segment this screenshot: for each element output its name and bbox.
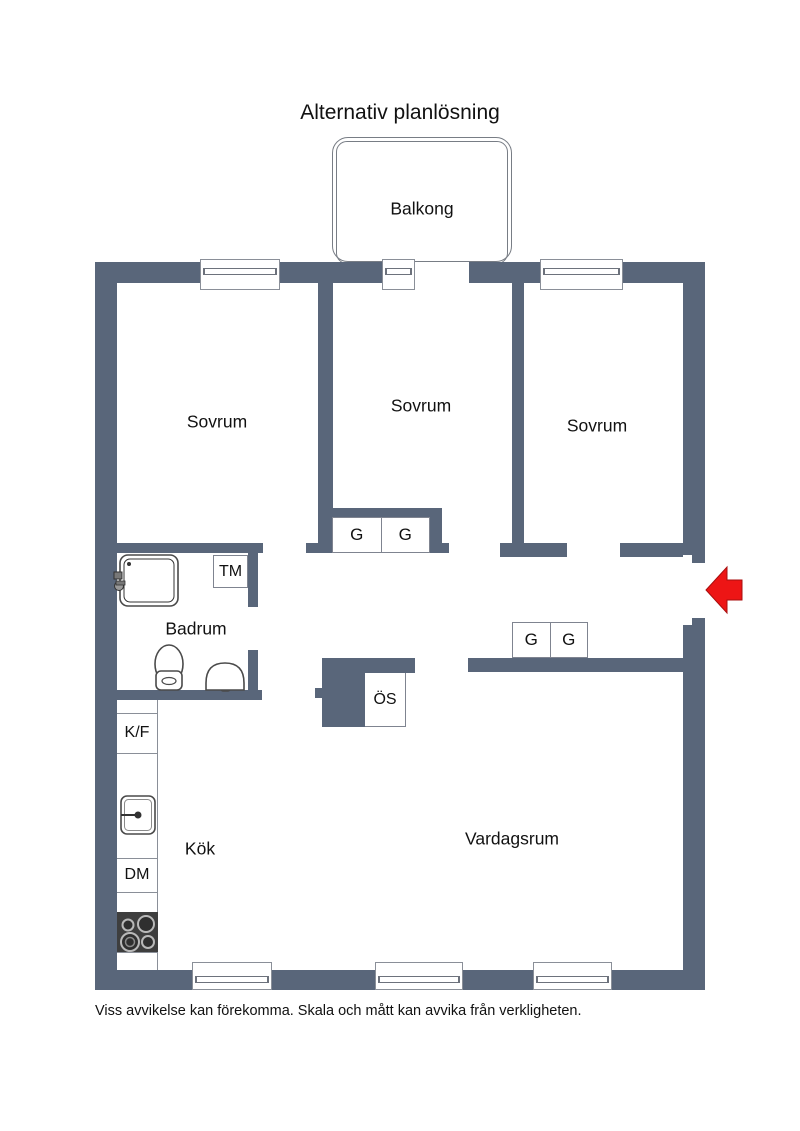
closet-cell: G [381, 518, 430, 552]
entrance-door-opening [683, 563, 705, 618]
closet-label: G [562, 630, 575, 650]
room-label-bedroom-left: Sovrum [187, 412, 247, 433]
window-pane [203, 268, 277, 275]
closet-cell: G [333, 518, 381, 552]
room-label-bedroom-middle: Sovrum [391, 396, 451, 417]
counter-divider [117, 713, 157, 714]
dishwasher-label: DM [125, 866, 150, 884]
toilet-icon [150, 640, 190, 695]
wall-tiled-stove-top [322, 658, 415, 673]
closet-label: G [525, 630, 538, 650]
wall-bedroom-middle-bottom [318, 508, 442, 517]
closet-cell: G [513, 623, 550, 657]
room-label-kitchen: Kök [185, 839, 215, 860]
window-bedroom-right [540, 259, 623, 290]
wall-foot-kitchen-door [315, 688, 322, 698]
closet-label: G [350, 525, 363, 545]
room-label-living-room: Vardagsrum [465, 829, 559, 850]
closet-label: G [399, 525, 412, 545]
window-bedroom-left [200, 259, 280, 290]
entrance-jamb-notch-bottom [683, 618, 692, 625]
wall-closet-right [430, 517, 442, 553]
closet-bedroom-middle: G G [332, 517, 430, 553]
closet-cell: G [550, 623, 588, 657]
tiled-stove-label: ÖS [373, 691, 396, 709]
window-pane [378, 976, 460, 983]
window-pane [536, 976, 609, 983]
wall-bathroom-top [117, 543, 263, 553]
bathroom-sink-icon [200, 658, 250, 694]
window-pane [543, 268, 620, 275]
floor-plan: Alternativ planlösning Balkong G G G G [0, 0, 800, 1131]
window-kitchen [192, 962, 272, 990]
wall-hall-top-right-of-bedroom3-door [620, 543, 683, 557]
room-label-bathroom: Badrum [165, 619, 226, 640]
wall-exterior-left [95, 262, 117, 990]
disclaimer-text: Viss avvikelse kan förekomma. Skala och … [95, 1003, 582, 1019]
entrance-arrow-icon [703, 565, 745, 615]
balcony-label: Balkong [390, 199, 453, 220]
wall-hall-top-left-of-bedroom3-door [500, 543, 567, 557]
window-balcony-side [382, 259, 415, 290]
window-living-room-1 [375, 962, 463, 990]
wall-bedrooms-2-3 [512, 283, 524, 543]
wall-foot-closet-right [442, 543, 449, 553]
balcony-door-opening [415, 262, 469, 283]
wall-foot-bedroom1-door [306, 543, 318, 553]
closet-hall: G G [512, 622, 588, 658]
window-pane [385, 268, 412, 275]
tiled-stove-box: ÖS [365, 673, 406, 727]
entrance-jamb-notch-top [683, 555, 692, 563]
balcony-outline: Balkong [332, 137, 512, 262]
window-living-room-2 [533, 962, 612, 990]
stove-icon [117, 912, 158, 952]
wall-living-room-top [468, 658, 683, 672]
counter-divider [117, 952, 157, 953]
shower-icon [112, 553, 182, 611]
counter-divider [117, 753, 157, 754]
counter-divider [117, 858, 157, 859]
window-pane [195, 976, 269, 983]
page-title: Alternativ planlösning [0, 101, 800, 125]
kitchen-sink-icon [118, 793, 158, 836]
wall-tiled-stove-left [322, 673, 365, 727]
fridge-freezer-label: K/F [125, 724, 150, 742]
counter-divider [117, 892, 157, 893]
washing-machine-label: TM [219, 563, 242, 581]
room-label-bedroom-right: Sovrum [567, 416, 627, 437]
wall-bathroom-right-upper [248, 553, 258, 607]
washing-machine-box: TM [213, 555, 248, 588]
